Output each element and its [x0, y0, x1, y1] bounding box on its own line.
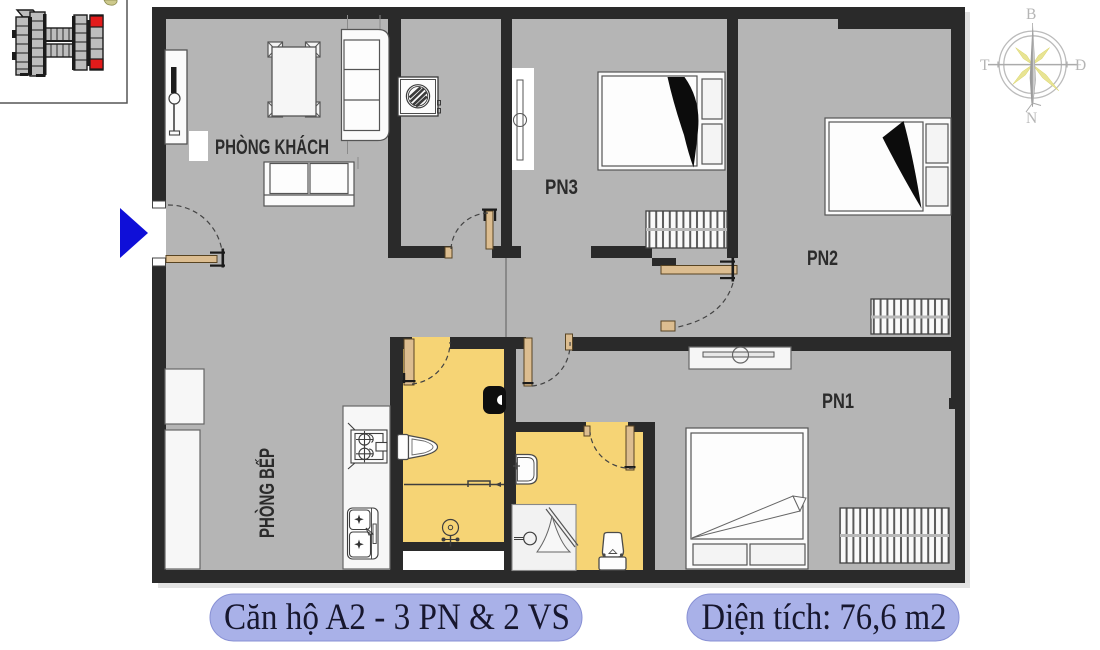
- svg-text:N: N: [1026, 110, 1037, 127]
- svg-text:PHÒNG KHÁCH: PHÒNG KHÁCH: [215, 135, 329, 159]
- svg-text:Đ: Đ: [1075, 57, 1086, 74]
- svg-text:PHÒNG BẾP: PHÒNG BẾP: [255, 448, 279, 538]
- svg-text:B: B: [1026, 6, 1036, 23]
- svg-text:PN3: PN3: [545, 176, 578, 199]
- svg-text:PN1: PN1: [822, 390, 854, 413]
- svg-text:Diện tích: 76,6 m2: Diện tích: 76,6 m2: [702, 597, 947, 638]
- svg-text:T: T: [980, 57, 990, 74]
- svg-text:Căn hộ A2 - 3 PN & 2 VS: Căn hộ A2 - 3 PN & 2 VS: [224, 597, 570, 638]
- svg-text:PN2: PN2: [807, 247, 838, 270]
